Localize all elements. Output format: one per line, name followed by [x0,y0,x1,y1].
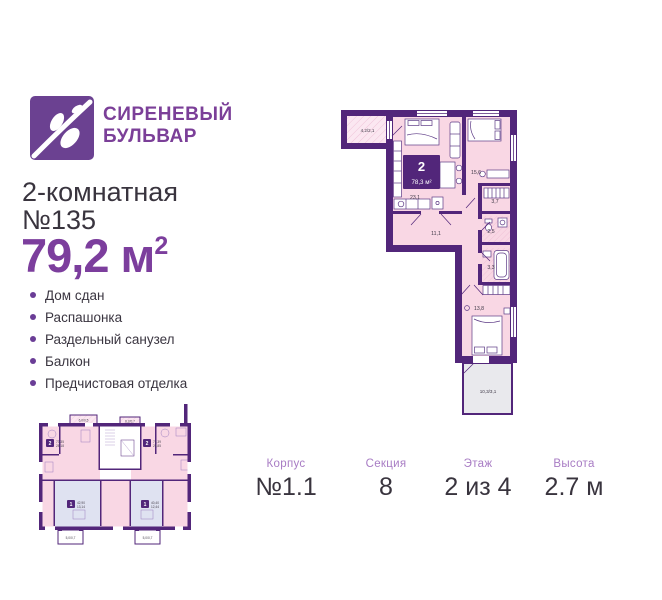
listing-type: 2-комнатная [22,178,178,206]
furniture-closet-shelves [484,188,509,198]
brand-line2: БУЛЬВАР [103,126,233,148]
feature-label: Предчистовая отделка [45,376,187,391]
detail-section: Секция 8 [366,458,407,502]
room-label-closet: 3,7 [491,199,498,205]
listing-title: 2-комнатная №135 [22,178,178,234]
detail-label: Высота [545,458,604,470]
brand-name: СИРЕНЕВЫЙ БУЛЬВАР [103,104,233,148]
brand-logo-icon [30,96,94,160]
mini-badge-left-rooms: 2 [49,441,52,447]
room-label-bath: 3,3 [487,265,494,271]
listing-area: 79,2 м2 [21,228,167,283]
room-label-bedroom1: 15,6 [471,170,481,176]
mini-badge-bl-living: 13,14 [77,505,85,509]
mini-badge-right-living: 29,85 [153,444,161,448]
feature-label: Дом сдан [45,288,104,303]
detail-label: Секция [366,458,407,470]
detail-label: Этаж [444,458,511,470]
room-label-living: 23,1 [410,195,420,201]
mini-badge-br-rooms: 1 [144,502,147,508]
furniture-bed-living [405,119,439,145]
room-label-balcony: 4,2/2,1 [361,128,375,133]
detail-value: 2.7 м [545,473,604,502]
room-label-hall: 11,1 [431,231,441,237]
bullet-icon [30,292,36,298]
mini-balcony-bottom-right: 5,0/0,7 [143,536,153,540]
detail-height: Высота 2.7 м [545,458,604,502]
feature-list: Дом сдан Распашонка Раздельный санузел Б… [30,284,187,394]
detail-value: 2 из 4 [444,473,511,502]
area-value: 79,2 м [21,229,154,282]
area-sup: 2 [154,232,167,260]
mini-badge-right-rooms: 2 [146,441,149,447]
room-label-terrace: 10,3/3,1 [480,389,497,394]
bullet-icon [30,314,36,320]
listing-card: СИРЕНЕВЫЙ БУЛЬВАР 2-комнатная №135 79,2 … [0,0,662,600]
detail-label: Корпус [255,458,317,470]
room-label-bedroom2: 13,8 [474,306,484,312]
furniture-cabinet-living [394,141,402,197]
furniture-bed-bedroom1 [468,119,501,141]
feature-item: Балкон [30,350,187,372]
plan-badge: 2 78,3 м² [403,155,440,189]
feature-item: Предчистовая отделка [30,372,187,394]
bullet-icon [30,336,36,342]
feature-item: Распашонка [30,306,187,328]
feature-item: Раздельный санузел [30,328,187,350]
badge-rooms: 2 [418,159,425,174]
brand-line1: СИРЕНЕВЫЙ [103,104,233,126]
mini-floorplan: 2 73,35 28,18 2 71,39 29,85 1 42,90 13,1… [15,402,215,557]
furniture-wardrobe-bedroom2 [483,286,510,295]
feature-item: Дом сдан [30,284,187,306]
feature-label: Раздельный санузел [45,332,175,347]
room-label-wc: 2,5 [487,229,494,235]
detail-value: №1.1 [255,473,317,502]
mini-badge-br-living: 12,44 [151,505,159,509]
detail-floor: Этаж 2 из 4 [444,458,511,502]
mini-balcony-bottom-left: 5,0/0,7 [66,536,76,540]
detail-building: Корпус №1.1 [255,458,317,502]
feature-label: Распашонка [45,310,122,325]
bullet-icon [30,358,36,364]
main-floorplan: 4,2/2,1 23,1 15,6 3,7 11,1 2,5 3,3 13,8 … [335,95,550,425]
feature-label: Балкон [45,354,90,369]
mini-badge-left-living: 28,18 [56,444,64,448]
badge-area: 78,3 м² [411,179,431,186]
detail-value: 8 [366,473,407,502]
mini-badge-bl-rooms: 1 [70,502,73,508]
mini-balcony-top-right: 6,2/0,7 [125,420,135,424]
furniture-sofa [450,122,460,158]
mini-balcony-top-left: 6,0/0,5 [79,419,89,423]
bullet-icon [30,380,36,386]
